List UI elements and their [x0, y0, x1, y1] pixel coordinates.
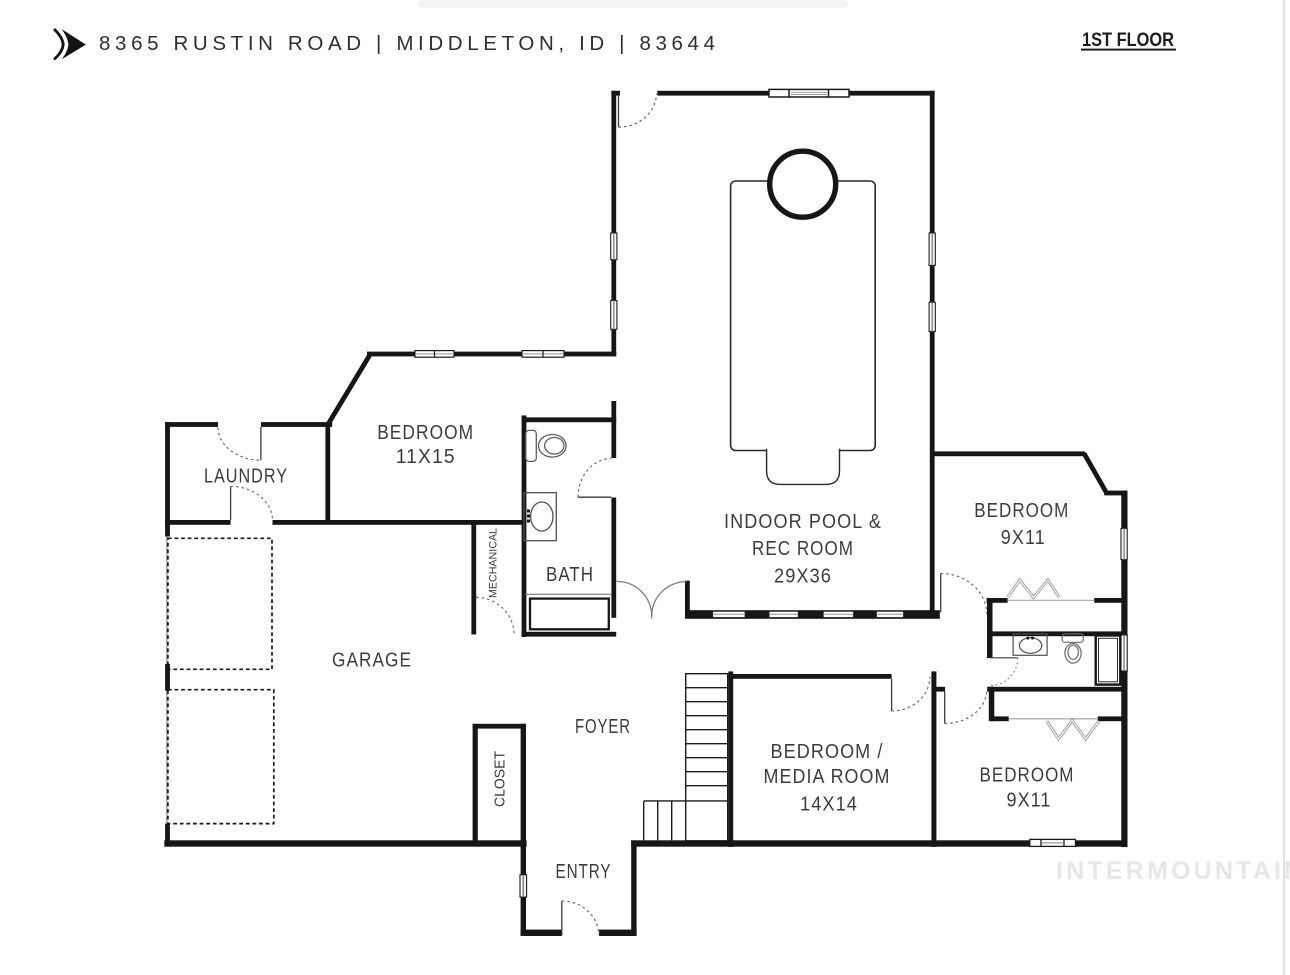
svg-text:BEDROOM /: BEDROOM /	[771, 741, 884, 763]
svg-text:MECHANICAL: MECHANICAL	[488, 528, 500, 598]
svg-text:BEDROOM: BEDROOM	[974, 500, 1069, 522]
svg-text:CLOSET: CLOSET	[492, 751, 509, 807]
svg-text:INDOOR POOL &: INDOOR POOL &	[724, 511, 882, 533]
svg-text:MEDIA ROOM: MEDIA ROOM	[764, 766, 891, 788]
svg-text:9X11: 9X11	[1001, 527, 1046, 549]
svg-text:LAUNDRY: LAUNDRY	[204, 466, 288, 488]
svg-text:ENTRY: ENTRY	[556, 861, 612, 883]
svg-text:GARAGE: GARAGE	[332, 650, 412, 672]
svg-text:11X15: 11X15	[396, 446, 456, 468]
svg-text:BEDROOM: BEDROOM	[980, 765, 1075, 787]
svg-text:14X14: 14X14	[800, 794, 858, 816]
svg-text:1ST FLOOR: 1ST FLOOR	[1082, 29, 1174, 51]
svg-text:BEDROOM: BEDROOM	[377, 422, 474, 444]
svg-text:9X11: 9X11	[1007, 790, 1052, 812]
svg-text:INTERMOUNTAIN: INTERMOUNTAIN	[1056, 857, 1290, 885]
svg-text:REC ROOM: REC ROOM	[752, 538, 854, 560]
svg-text:FOYER: FOYER	[575, 716, 631, 738]
svg-text:BATH: BATH	[546, 564, 594, 586]
svg-text:29X36: 29X36	[774, 566, 832, 588]
